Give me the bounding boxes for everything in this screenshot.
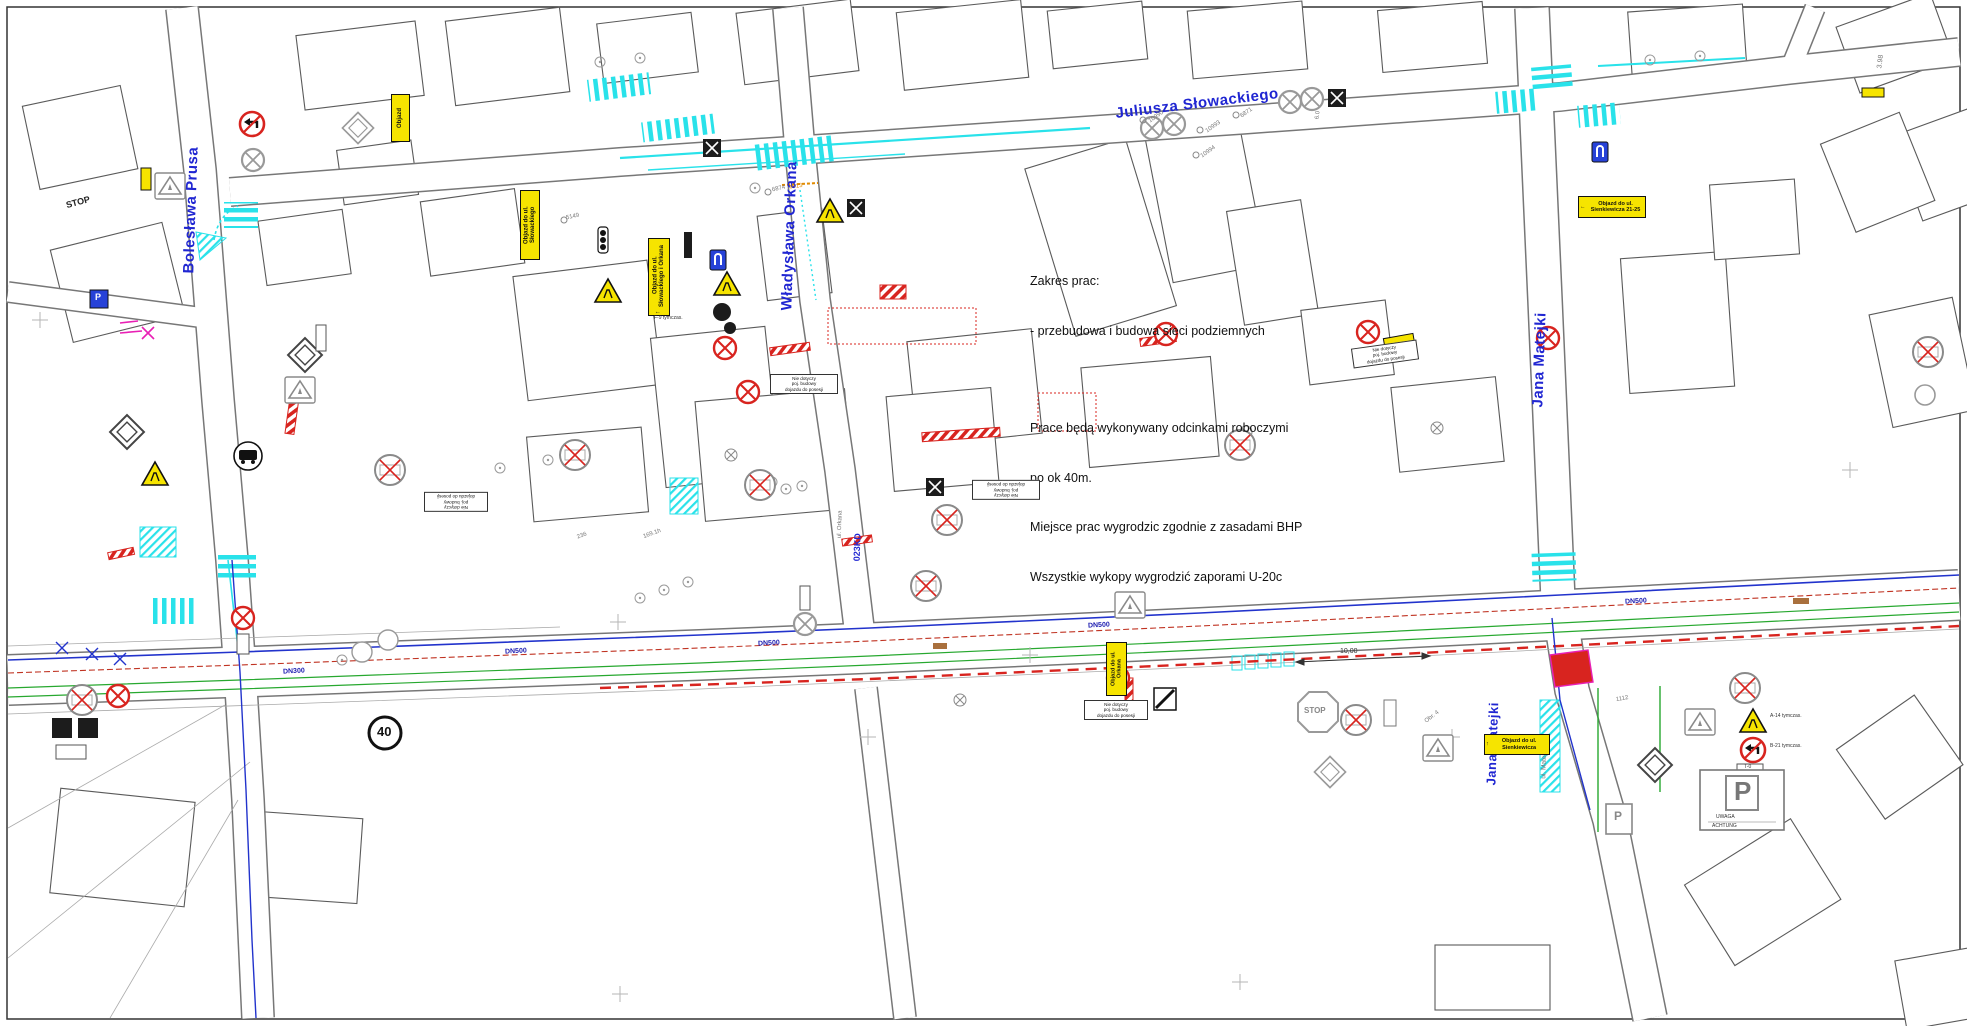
- stop-sign-text: STOP: [1304, 707, 1326, 715]
- detour-sign: Objazd: [391, 94, 410, 142]
- road-closure-barrier: [1550, 650, 1593, 687]
- bicycle-sign: [378, 630, 398, 650]
- ref-label-orkana: ul. Orkana: [837, 510, 844, 538]
- detour-sign-f9-code: F-9 tymczas.: [654, 316, 683, 321]
- b21-label: B-21 tymczas.: [1770, 744, 1802, 749]
- pipe-label-dn500: DN500: [1088, 621, 1110, 629]
- survey-label: 6.0: [1315, 111, 1322, 120]
- no-parking-sign: [375, 455, 405, 485]
- pipe-label-dn500: DN500: [1625, 597, 1647, 605]
- notes-title: Zakres prac:: [1030, 273, 1302, 290]
- warning-sign: [1423, 735, 1453, 761]
- signal-head: [713, 303, 731, 321]
- buildings: [22, 0, 1967, 1026]
- parking-board-letter: P: [1734, 778, 1751, 805]
- notes-line: Miejsce prac wygrodzic zgodnie z zasadam…: [1030, 519, 1302, 536]
- t0-label: T-0: [1744, 765, 1751, 770]
- no-stopping-sign: [232, 607, 254, 629]
- sign-small: [316, 325, 326, 351]
- barrier-u20c: [108, 547, 135, 559]
- bicycle-sign: [352, 642, 372, 662]
- no-stopping-sign: [737, 381, 759, 403]
- no-stopping-sign: [242, 149, 264, 171]
- a14-label: A-14 tymczas.: [1770, 714, 1802, 719]
- sign-small: [56, 745, 86, 759]
- no-left-turn-sign-b21: [1741, 738, 1765, 762]
- warning-sign: [285, 377, 315, 403]
- detour-sign: ← Objazd do ul. Sienkiewicza 21-25: [1578, 196, 1646, 218]
- no-parking-sign: [745, 470, 775, 500]
- no-parking-sign: [67, 685, 97, 715]
- no-parking-sign: [1730, 673, 1760, 703]
- sign-small: [1384, 700, 1396, 726]
- no-stopping-sign: [1301, 88, 1323, 110]
- no-parking-sign: [1341, 705, 1371, 735]
- signal-head: [724, 322, 736, 334]
- work-scope-notes: Zakres prac: - przebudowa i budowa sieci…: [1030, 240, 1302, 602]
- street-label-matejki-top: Jana Matejki: [1530, 312, 1549, 408]
- no-stopping-sign: [794, 613, 816, 635]
- notes-line: po ok 40m.: [1030, 470, 1302, 487]
- arrow-up-icon: ↑: [656, 311, 663, 314]
- crossed-sign: [703, 139, 721, 157]
- parking-small-letter: P: [1614, 810, 1622, 823]
- no-parking-sign: [560, 440, 590, 470]
- priority-road-sign: [342, 112, 373, 143]
- no-parking-sign: [911, 571, 941, 601]
- crossed-sign: [847, 199, 865, 217]
- site-plan-drawing: Juliusza Słowackiego Bolesława Prusa Wła…: [0, 0, 1967, 1026]
- crossed-sign: [926, 478, 944, 496]
- exception-plate: Nie dotyczypoj. budowydojazdu do posesji: [770, 374, 838, 394]
- notes-line: - przebudowa i budowa sieci podziemnych: [1030, 323, 1302, 340]
- speed-40-text: 40: [377, 725, 391, 739]
- priority-road-sign: [1314, 756, 1345, 787]
- detour-marker: [141, 168, 151, 190]
- detour-sign: Objazd do ul. Orkana: [1106, 642, 1127, 696]
- no-stopping-sign: [714, 337, 736, 359]
- parking-board-uwaga: UWAGA: [1716, 815, 1735, 820]
- notes-line: Prace będą wykonywany odcinkami roboczym…: [1030, 420, 1302, 437]
- info-sign-blue: [1592, 142, 1608, 162]
- no-stopping-sign: [1163, 113, 1185, 135]
- pipe-label-dn500: DN500: [758, 639, 780, 647]
- detour-sign: Objazd do ul. Słowackiego: [520, 190, 540, 260]
- warning-sign: [1685, 709, 1715, 735]
- barrier-u20c: [770, 342, 811, 355]
- exception-plate: Nie dotyczypoj. budowydojazdu do posesji: [972, 480, 1040, 500]
- detour-sign-f9: ↑Objazd do ul. Słowackiego i Orkana: [648, 238, 670, 316]
- arrow-up-icon: ↑: [1486, 741, 1489, 747]
- info-sign-blue: [710, 250, 726, 270]
- parking-blue-letter: P: [95, 293, 101, 302]
- priority-road-sign: [110, 415, 144, 449]
- notes-line: Wszystkie wykopy wygrodzić zaporami U-20…: [1030, 569, 1302, 586]
- detour-marker: [1862, 88, 1884, 97]
- no-stopping-sign: [1279, 91, 1301, 113]
- crossed-sign: [1328, 89, 1346, 107]
- sign-black: [52, 718, 72, 738]
- detour-sign: ↑ Objazd do ul. Sienkiewicza: [1484, 734, 1550, 755]
- pipe-label-dn300: DN300: [283, 667, 305, 675]
- pipe-label-dn500: DN500: [505, 647, 527, 655]
- no-parking-sign: [1913, 337, 1943, 367]
- no-parking-sign: [932, 505, 962, 535]
- two-way-sign: [714, 272, 740, 295]
- parking-board-achtung: ACHTUNG: [1712, 824, 1737, 829]
- traffic-signal: [598, 227, 608, 253]
- no-stopping-sign: [1357, 321, 1379, 343]
- sign-small: [237, 634, 249, 654]
- exception-plate: Nie dotyczypoj. budowydojazdu do posesji: [1084, 700, 1148, 720]
- bicycle-sign: [1915, 385, 1935, 405]
- plan-geometry: [0, 0, 1967, 1026]
- priority-road-sign: [1638, 748, 1672, 782]
- sewer-label-023kd: 023KD: [853, 533, 863, 561]
- bus-route-sign: [234, 442, 262, 470]
- arrow-left-icon: ←: [1580, 204, 1586, 210]
- sign-black: [78, 718, 98, 738]
- no-stopping-sign: [107, 685, 129, 707]
- dimension-label: 10,00: [1340, 648, 1358, 655]
- no-left-turn-sign: [240, 112, 264, 136]
- roadworks-sign-a14: [1740, 709, 1766, 732]
- warning-sign: [155, 173, 185, 199]
- roadworks-sign: [142, 462, 168, 485]
- exception-plate: Nie dotyczypoj. budowydojazdu do posesji: [424, 492, 488, 512]
- sign-small: [800, 586, 810, 610]
- sign-post: [684, 232, 692, 258]
